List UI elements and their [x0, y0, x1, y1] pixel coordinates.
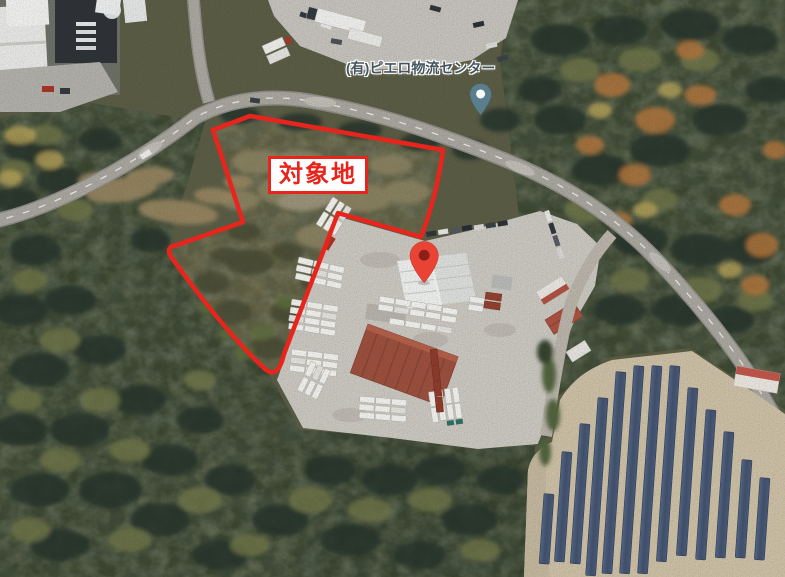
site-label: 対象地: [268, 156, 368, 194]
satellite-imagery: [0, 0, 785, 577]
business-place-label[interactable]: (有)ピエロ物流センター: [346, 59, 495, 77]
satellite-map[interactable]: 対象地 (有)ピエロ物流センター: [0, 0, 785, 577]
grain-overlay: [0, 0, 785, 577]
